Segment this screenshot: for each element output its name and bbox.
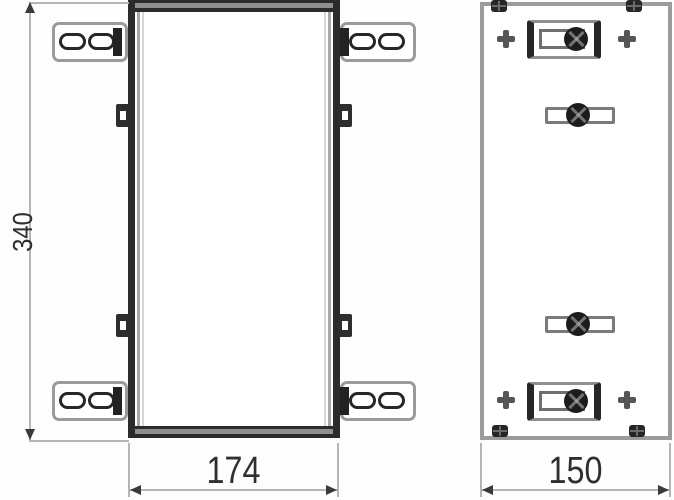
frame-bottom-rail <box>128 426 340 438</box>
corner-screw-top-right <box>626 0 642 12</box>
screw-head <box>566 103 590 127</box>
height-extension-line-bottom <box>29 440 129 442</box>
bracket-slot-oval <box>59 33 86 50</box>
front-view-body <box>128 0 340 438</box>
screw-head <box>564 389 588 413</box>
corner-screw-top-left <box>491 0 507 12</box>
frame-inner-line <box>137 12 140 426</box>
height-extension-line-top <box>29 2 129 4</box>
bracket-slot-oval <box>349 392 376 409</box>
frame-inner-line <box>328 12 331 426</box>
dimension-arrow-right <box>326 485 337 495</box>
dimension-arrow-up <box>25 2 35 13</box>
screw-head <box>566 312 590 336</box>
frame-inner-line <box>142 12 144 426</box>
frame-right-edge <box>333 0 340 438</box>
frame-inner-line <box>324 12 326 426</box>
dimension-arrow-right <box>658 485 669 495</box>
side-view-panel <box>480 2 672 440</box>
bracket-end-cap <box>340 28 349 56</box>
mounting-bracket-top-left <box>52 22 128 62</box>
dimension-arrow-left <box>482 485 493 495</box>
mounting-bracket-bottom-left <box>52 381 128 421</box>
depth-dimension-label: 150 <box>494 453 656 489</box>
bracket-slot-oval <box>59 392 86 409</box>
side-clip-left-upper <box>116 104 130 127</box>
cross-screw <box>618 391 636 409</box>
corner-screw-bottom-right <box>629 425 645 437</box>
dimension-arrow-down <box>25 429 35 440</box>
width-dimension-label: 174 <box>144 453 323 489</box>
cross-screw <box>497 391 515 409</box>
side-clip-right-upper <box>338 104 352 127</box>
corner-screw-bottom-left <box>492 425 508 437</box>
height-dimension-label: 340 <box>8 207 38 258</box>
mounting-bracket-top-right <box>340 22 416 62</box>
frame-top-rail <box>128 0 340 12</box>
technical-drawing: 340 174 150 <box>0 0 674 500</box>
bracket-end-cap <box>113 387 122 415</box>
dimension-arrow-left <box>130 485 141 495</box>
bracket-slot-oval <box>88 33 115 50</box>
bracket-slot-oval <box>349 33 376 50</box>
bracket-slot-oval <box>88 392 115 409</box>
bracket-slot-oval <box>378 33 405 50</box>
side-clip-left-lower <box>116 314 130 337</box>
screw-head <box>564 27 588 51</box>
bracket-slot-oval <box>378 392 405 409</box>
cross-screw <box>497 30 515 48</box>
frame-left-edge <box>128 0 135 438</box>
side-clip-right-lower <box>338 314 352 337</box>
bracket-end-cap <box>340 387 349 415</box>
bracket-end-cap <box>113 28 122 56</box>
mounting-bracket-bottom-right <box>340 381 416 421</box>
cross-screw <box>618 30 636 48</box>
